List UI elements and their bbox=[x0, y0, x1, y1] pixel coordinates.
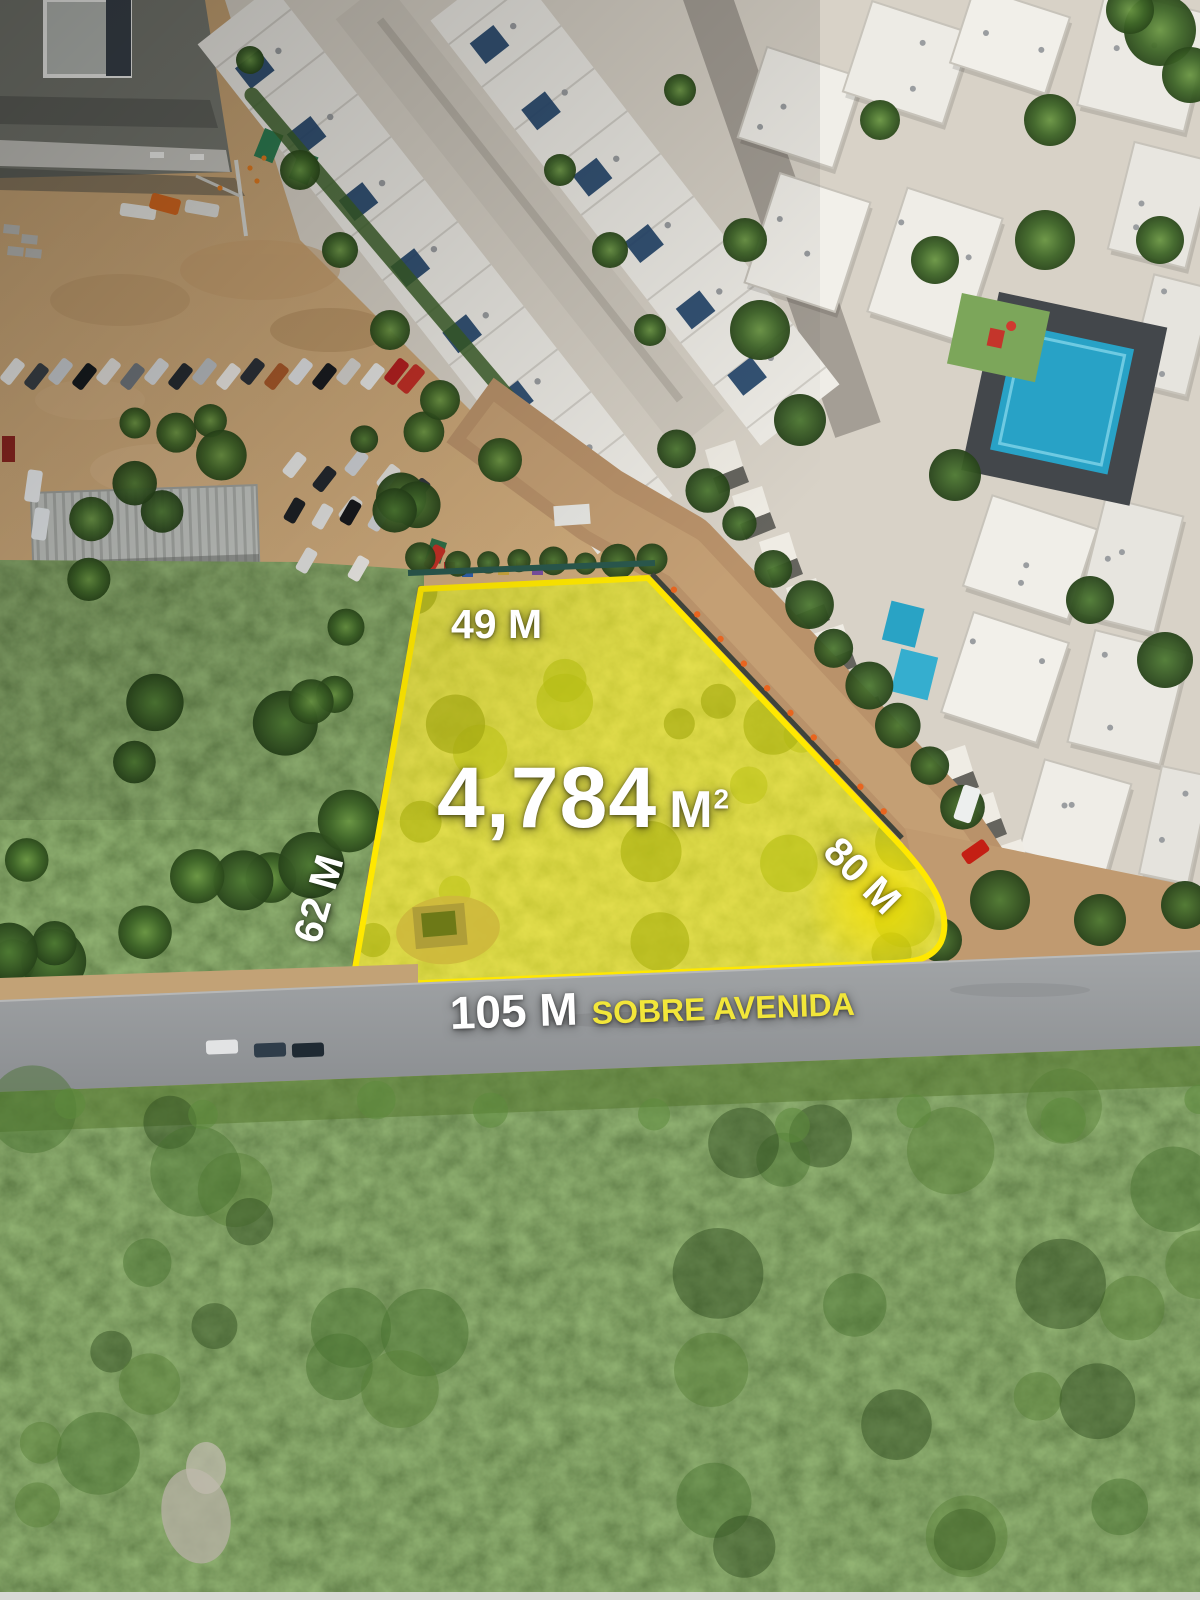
canopy-clump bbox=[1016, 1239, 1106, 1329]
tree bbox=[544, 154, 576, 186]
frontage-dimension: 105 M bbox=[449, 986, 578, 1036]
tree bbox=[723, 218, 767, 262]
verge-shrub bbox=[897, 1094, 931, 1128]
building-solar-strip bbox=[106, 0, 131, 76]
ac-unit bbox=[1159, 371, 1165, 377]
ac-unit bbox=[431, 246, 437, 252]
tree bbox=[420, 380, 460, 420]
tree bbox=[327, 609, 364, 646]
traffic-cone bbox=[671, 587, 677, 593]
tree bbox=[69, 497, 113, 541]
ac-unit bbox=[1061, 802, 1067, 808]
plot-area-label: 4,784M2 bbox=[437, 755, 730, 841]
traffic-cone bbox=[857, 784, 863, 790]
ac-unit bbox=[898, 219, 904, 225]
tree bbox=[156, 413, 196, 453]
tree bbox=[774, 394, 826, 446]
roadside-car bbox=[292, 1042, 324, 1057]
concrete-blocks bbox=[3, 224, 20, 235]
ac-unit bbox=[1182, 791, 1188, 797]
area-unit-sup: 2 bbox=[714, 784, 731, 815]
ac-unit bbox=[1038, 47, 1044, 53]
concrete-blocks bbox=[25, 248, 42, 259]
tree bbox=[126, 674, 183, 731]
ac-unit bbox=[910, 86, 916, 92]
canopy-clump bbox=[673, 1228, 764, 1319]
canopy-clump bbox=[150, 1126, 241, 1217]
tree bbox=[664, 74, 696, 106]
ac-unit bbox=[1107, 725, 1113, 731]
tree bbox=[170, 849, 224, 903]
tree bbox=[372, 488, 416, 532]
ac-unit bbox=[983, 30, 989, 36]
ac-unit bbox=[379, 180, 385, 186]
tree bbox=[113, 741, 156, 784]
ac-unit bbox=[1039, 658, 1045, 664]
canopy-clump bbox=[713, 1515, 775, 1577]
tree bbox=[1015, 210, 1075, 270]
canopy-clump bbox=[361, 1350, 439, 1428]
tree bbox=[636, 543, 667, 574]
worker bbox=[261, 155, 266, 160]
tree bbox=[592, 232, 628, 268]
tree bbox=[860, 100, 900, 140]
canopy-clump bbox=[708, 1108, 779, 1179]
tree bbox=[722, 506, 756, 540]
verge-shrub bbox=[55, 1088, 86, 1119]
tree bbox=[280, 150, 320, 190]
ac-unit bbox=[327, 114, 333, 120]
canopy-clump bbox=[123, 1238, 171, 1286]
tree bbox=[1066, 576, 1114, 624]
verge-shrub bbox=[188, 1100, 218, 1130]
verge-shrub bbox=[473, 1093, 508, 1128]
tree bbox=[875, 703, 921, 749]
ac-unit bbox=[534, 378, 540, 384]
canopy-clump bbox=[119, 1353, 180, 1414]
ac-unit bbox=[757, 124, 763, 130]
canopy-clump bbox=[57, 1412, 140, 1495]
tree bbox=[754, 550, 792, 588]
traffic-cone bbox=[764, 685, 770, 691]
verge-shrub bbox=[775, 1108, 810, 1143]
tree bbox=[911, 236, 959, 284]
canopy-clump bbox=[192, 1303, 238, 1349]
dimension-label-top: 49 M bbox=[451, 604, 542, 645]
white-shed bbox=[553, 504, 590, 526]
ac-unit bbox=[1105, 556, 1111, 562]
worker bbox=[247, 165, 252, 170]
ac-unit bbox=[1119, 549, 1125, 555]
traffic-cone bbox=[717, 636, 723, 642]
tree bbox=[350, 425, 378, 453]
concrete-blocks bbox=[21, 234, 38, 245]
tree bbox=[929, 449, 981, 501]
tree bbox=[730, 300, 790, 360]
tree bbox=[318, 790, 381, 853]
ac-unit bbox=[1102, 652, 1108, 658]
traffic-cone bbox=[834, 759, 840, 765]
industrial-building bbox=[0, 0, 245, 196]
aerial-listing-image: 49 M 62 M 80 M 4,784M2 105 M SOBRE AVENI… bbox=[0, 0, 1200, 1600]
ac-unit bbox=[1114, 45, 1120, 51]
tree bbox=[196, 430, 247, 481]
roadside-car bbox=[206, 1039, 238, 1054]
verge-shrub bbox=[638, 1098, 670, 1130]
ac-unit bbox=[562, 89, 568, 95]
tree bbox=[814, 629, 853, 668]
ac-unit bbox=[613, 156, 619, 162]
red-container bbox=[2, 436, 15, 462]
tree bbox=[478, 438, 522, 482]
verge-shrub bbox=[1041, 1097, 1086, 1142]
traffic-cone bbox=[694, 611, 700, 617]
ac-unit bbox=[1018, 580, 1024, 586]
ac-unit bbox=[966, 254, 972, 260]
ac-unit bbox=[483, 312, 489, 318]
ac-unit bbox=[780, 104, 786, 110]
ac-unit bbox=[1138, 201, 1144, 207]
canopy-clump bbox=[1014, 1372, 1062, 1420]
ac-unit bbox=[804, 251, 810, 257]
tree bbox=[118, 906, 171, 959]
tree bbox=[685, 468, 730, 513]
tree bbox=[67, 558, 110, 601]
image-bottom-edge bbox=[0, 1592, 1200, 1600]
tree bbox=[405, 542, 435, 572]
tree bbox=[322, 232, 358, 268]
ac-unit bbox=[1133, 224, 1139, 230]
ac-unit bbox=[777, 216, 783, 222]
tree bbox=[911, 746, 950, 785]
canopy-clump bbox=[823, 1273, 886, 1336]
tree bbox=[1074, 894, 1126, 946]
area-unit-base: M bbox=[669, 781, 713, 839]
ac-unit bbox=[716, 288, 722, 294]
canopy-clump bbox=[926, 1495, 1008, 1577]
worker bbox=[217, 185, 222, 190]
roadside-car bbox=[254, 1042, 286, 1057]
traffic-cone bbox=[880, 808, 886, 814]
tree bbox=[370, 310, 410, 350]
ac-unit bbox=[1159, 837, 1165, 843]
traffic-cone bbox=[787, 710, 793, 716]
tree bbox=[970, 870, 1030, 930]
canopy-clump bbox=[674, 1333, 748, 1407]
tree bbox=[1024, 94, 1076, 146]
ac-unit bbox=[920, 40, 926, 46]
canopy-clump bbox=[1059, 1363, 1135, 1439]
tree bbox=[634, 314, 666, 346]
area-unit: M2 bbox=[669, 781, 730, 839]
canopy-clump bbox=[1091, 1479, 1148, 1536]
concrete-blocks bbox=[7, 246, 24, 257]
tree bbox=[657, 429, 696, 468]
ac-unit bbox=[1023, 562, 1029, 568]
ac-unit bbox=[1069, 802, 1075, 808]
ac-unit bbox=[970, 638, 976, 644]
tree bbox=[112, 461, 157, 506]
canopy-clump bbox=[226, 1198, 273, 1245]
ac-unit bbox=[275, 48, 281, 54]
area-value: 4,784 bbox=[437, 750, 657, 846]
ac-unit bbox=[1161, 288, 1167, 294]
canopy-clump bbox=[1100, 1276, 1165, 1341]
tree bbox=[289, 679, 334, 724]
traffic-cone bbox=[741, 660, 747, 666]
ac-unit bbox=[510, 23, 516, 29]
canopy-clump bbox=[20, 1422, 62, 1464]
traffic-cone bbox=[811, 734, 817, 740]
tree bbox=[5, 838, 49, 882]
canopy-clump bbox=[861, 1389, 932, 1460]
tree bbox=[539, 547, 568, 576]
frontage-note: SOBRE AVENIDA bbox=[591, 988, 855, 1029]
tree bbox=[236, 46, 264, 74]
canopy-clump bbox=[311, 1288, 391, 1368]
tree bbox=[1137, 632, 1193, 688]
verge-shrub bbox=[357, 1081, 396, 1120]
tree bbox=[32, 921, 76, 965]
ac-unit bbox=[665, 222, 671, 228]
tree bbox=[845, 662, 893, 710]
tree bbox=[119, 407, 150, 438]
tree bbox=[1136, 216, 1184, 264]
canopy-clump bbox=[15, 1482, 60, 1527]
worker bbox=[254, 178, 259, 183]
tree bbox=[785, 580, 834, 629]
